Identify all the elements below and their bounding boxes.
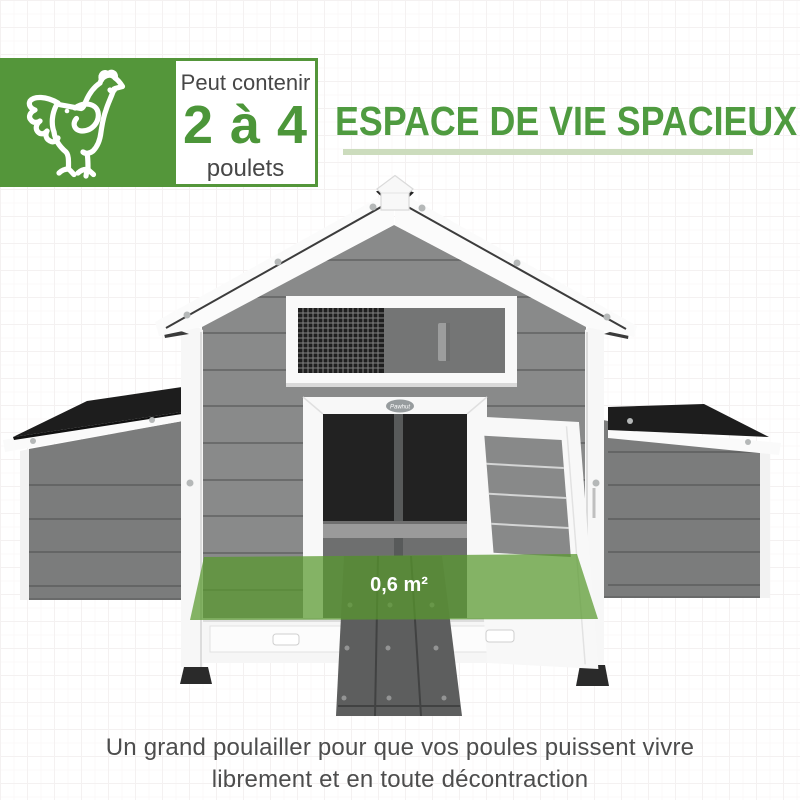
svg-text:0,6 m²: 0,6 m² (370, 574, 428, 596)
svg-text:Pawhut: Pawhut (390, 405, 410, 411)
